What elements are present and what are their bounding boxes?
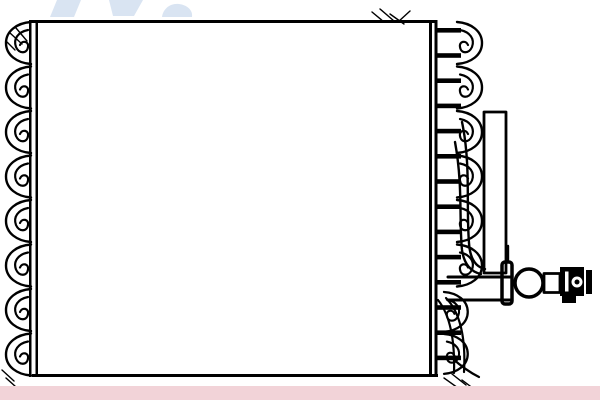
tube-bends	[438, 122, 485, 377]
watermark-shape	[50, 0, 81, 17]
end-cap	[586, 270, 592, 294]
tube-rung	[437, 28, 461, 33]
outlet-pipe	[484, 112, 506, 273]
connector-slit	[565, 272, 569, 292]
tube-rung	[437, 53, 461, 58]
bottom-highlight-band	[0, 386, 600, 400]
tube-rung	[437, 280, 461, 285]
fin-scallop	[6, 22, 31, 64]
fin-scallop	[6, 200, 31, 242]
core-top-edge	[29, 20, 437, 23]
core-right-wall-outer	[435, 20, 438, 377]
bolt-center	[575, 280, 580, 285]
fin-scallop	[6, 245, 31, 287]
technical-drawing	[0, 0, 600, 400]
partial-logo-watermark	[50, 0, 192, 17]
watermark-shape	[162, 4, 192, 17]
left-fin-column	[6, 22, 31, 376]
fin-scallop	[6, 111, 31, 153]
flange-circle	[515, 269, 543, 297]
core-bottom-edge	[32, 374, 438, 377]
fin-scallop	[6, 289, 31, 331]
core-right-wall-inner	[429, 20, 432, 377]
tube-rung	[437, 179, 461, 184]
drawing-canvas	[0, 0, 600, 400]
pipe-end-fitting	[448, 246, 592, 304]
tube-rung	[437, 204, 461, 209]
tube-rung	[437, 230, 461, 235]
fin-scallop	[6, 334, 31, 376]
tube-rung	[437, 129, 461, 134]
tube-rung	[437, 78, 461, 83]
fin-scallop	[6, 67, 31, 109]
fin-scallop	[6, 156, 31, 198]
watermark-shape	[109, 0, 143, 16]
connector-tab	[562, 296, 576, 303]
fin-scallop	[457, 111, 482, 153]
core-left-wall-inner	[36, 20, 39, 377]
cylinder-segment	[544, 274, 560, 293]
tube-rung	[437, 255, 461, 260]
hatch-marks	[2, 9, 474, 389]
fin-scallop	[457, 67, 482, 109]
evaporator-core-body	[29, 20, 438, 377]
